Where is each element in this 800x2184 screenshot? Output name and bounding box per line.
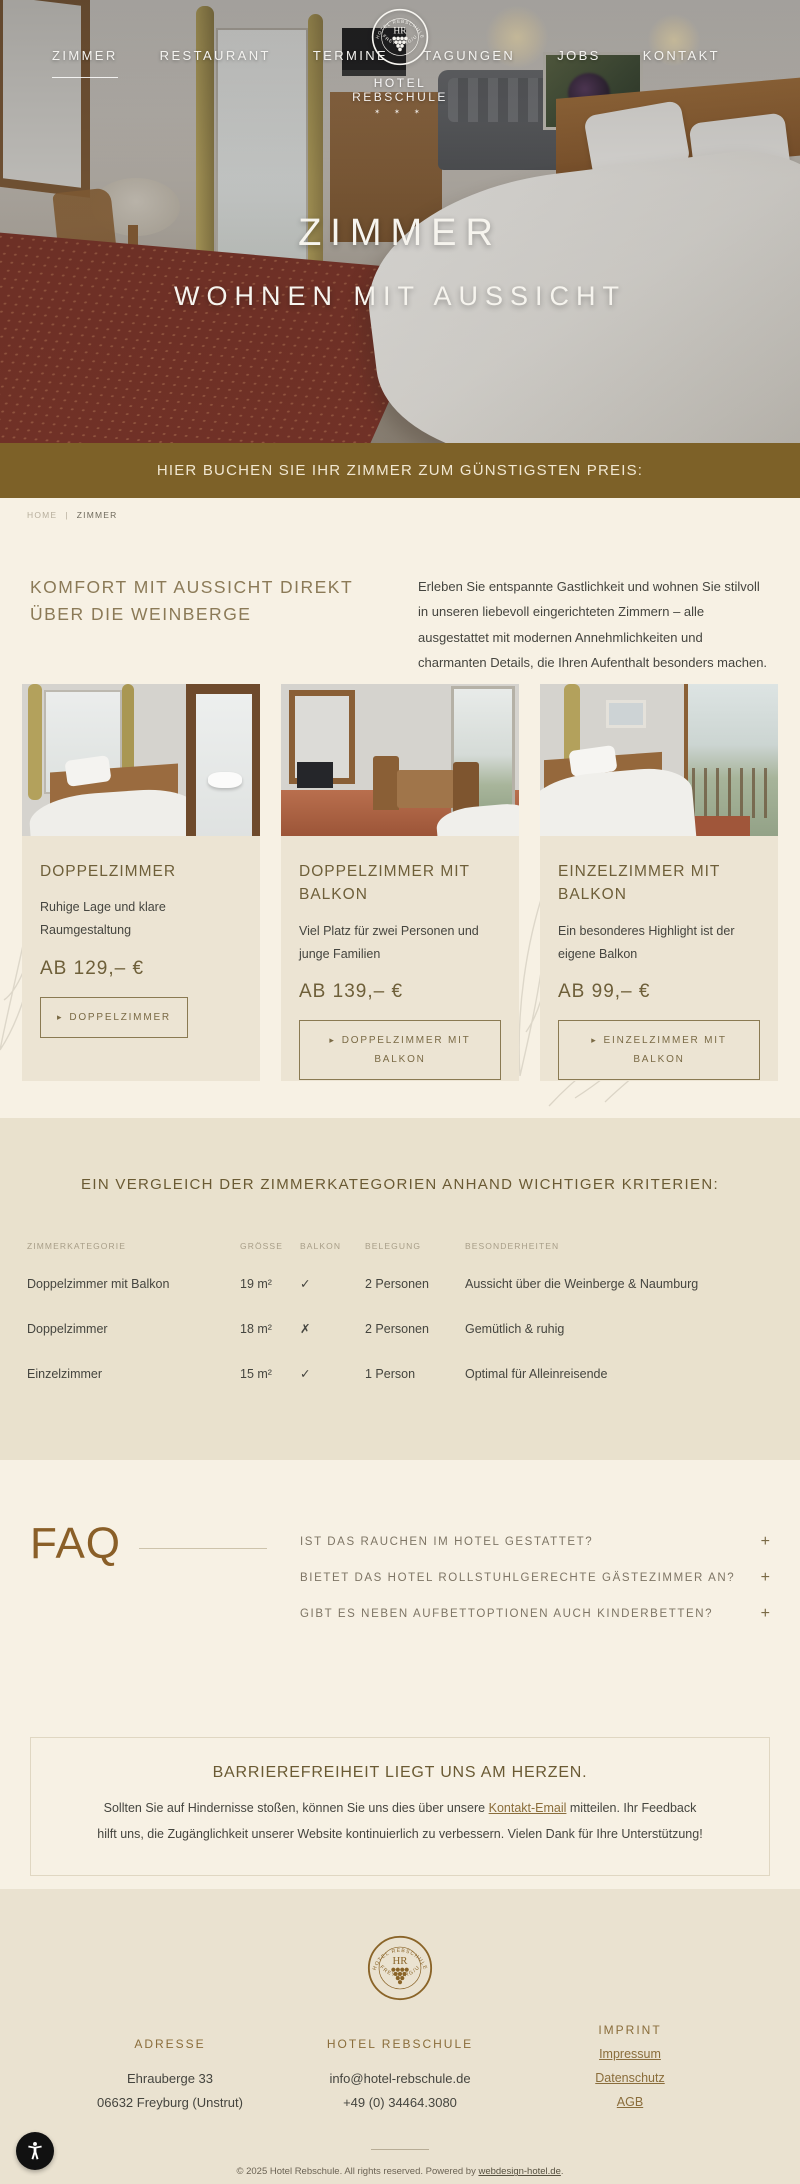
faq-divider-line xyxy=(139,1548,267,1549)
hotel-badge-icon xyxy=(371,8,429,66)
footer-address-heading: ADRESSE xyxy=(55,2037,285,2051)
room-card-doppelzimmer-balkon: DOPPELZIMMER MIT BALKON Viel Platz für z… xyxy=(281,684,519,1081)
accessibility-note: BARRIEREFREIHEIT LIEGT UNS AM HERZEN. So… xyxy=(30,1737,770,1876)
footer-address-column: ADRESSE Ehrauberge 33 06632 Freyburg (Un… xyxy=(55,2037,285,2115)
page-subtitle: WOHNEN MIT AUSSICHT xyxy=(0,281,800,312)
column-header: GRÖSSE xyxy=(240,1241,300,1261)
intro-heading: KOMFORT MIT AUSSICHT DIREKT ÜBER DIE WEI… xyxy=(30,574,370,678)
room-title: DOPPELZIMMER xyxy=(40,860,242,883)
card-art xyxy=(28,684,42,800)
room-description: Ein besonderes Highlight ist der eigene … xyxy=(558,920,760,966)
footer-phone[interactable]: +49 (0) 34464.3080 xyxy=(285,2091,515,2115)
accessibility-note-text: Sollten Sie auf Hindernisse stoßen, könn… xyxy=(97,1796,703,1847)
footer-hotel-badge-icon xyxy=(367,1935,433,2001)
cell-besonderheiten: Optimal für Alleinreisende xyxy=(465,1367,773,1381)
breadcrumb-separator: | xyxy=(65,510,68,520)
room-button-doppelzimmer[interactable]: ▸DOPPELZIMMER xyxy=(40,997,188,1038)
booking-banner-text: HIER BUCHEN SIE IHR ZIMMER ZUM GÜNSTIGST… xyxy=(157,462,643,479)
footer-address-line1: Ehrauberge 33 xyxy=(55,2067,285,2091)
room-cards: DOPPELZIMMER Ruhige Lage und klare Raumg… xyxy=(22,684,778,1081)
datenschutz-link[interactable]: Datenschutz xyxy=(515,2067,745,2091)
cell-groesse: 19 m² xyxy=(240,1277,300,1291)
cell-belegung: 2 Personen xyxy=(365,1322,465,1336)
plus-icon[interactable]: + xyxy=(761,1533,770,1551)
page-title: ZIMMER xyxy=(0,212,800,255)
copyright-text: © 2025 Hotel Rebschule. All rights reser… xyxy=(236,2166,478,2177)
copyright-text-after: . xyxy=(561,2166,564,2177)
column-header: ZIMMERKATEGORIE xyxy=(27,1241,240,1261)
room-button-einzelzimmer-balkon[interactable]: ▸EINZELZIMMER MIT BALKON xyxy=(558,1020,760,1080)
hero-titles: ZIMMER WOHNEN MIT AUSSICHT xyxy=(0,212,800,312)
plus-icon[interactable]: + xyxy=(761,1569,770,1587)
room-price: AB 99,– € xyxy=(558,981,760,1003)
arrow-icon: ▸ xyxy=(57,1012,63,1022)
table-row: Doppelzimmer mit Balkon 19 m² ✓ 2 Person… xyxy=(27,1261,773,1306)
faq-item-kinderbetten[interactable]: GIBT ES NEBEN AUFBETTOPTIONEN AUCH KINDE… xyxy=(300,1596,770,1632)
breadcrumb-current: ZIMMER xyxy=(77,510,118,520)
room-price: AB 129,– € xyxy=(40,958,242,980)
room-button-label: DOPPELZIMMER MIT BALKON xyxy=(342,1035,471,1065)
room-button-label: DOPPELZIMMER xyxy=(69,1012,171,1023)
agb-link[interactable]: AGB xyxy=(515,2091,745,2115)
footer-email[interactable]: info@hotel-rebschule.de xyxy=(285,2067,515,2091)
card-art xyxy=(397,770,455,808)
table-row: Einzelzimmer 15 m² ✓ 1 Person Optimal fü… xyxy=(27,1351,773,1396)
impressum-link[interactable]: Impressum xyxy=(515,2043,745,2067)
faq-item-rauchen[interactable]: IST DAS RAUCHEN IM HOTEL GESTATTET? + xyxy=(300,1524,770,1560)
cell-groesse: 18 m² xyxy=(240,1322,300,1336)
faq-list: IST DAS RAUCHEN IM HOTEL GESTATTET? + BI… xyxy=(300,1522,770,1737)
card-art xyxy=(208,772,242,788)
footer-imprint-heading: IMPRINT xyxy=(515,2023,745,2037)
faq-section: FAQ IST DAS RAUCHEN IM HOTEL GESTATTET? … xyxy=(0,1460,800,1737)
note-text-before: Sollten Sie auf Hindernisse stoßen, könn… xyxy=(104,1801,489,1815)
logo-stars-icon: ✶ ✶ ✶ xyxy=(325,108,475,116)
check-icon: ✓ xyxy=(300,1366,365,1381)
room-title: DOPPELZIMMER MIT BALKON xyxy=(299,860,501,907)
intro-section: KOMFORT MIT AUSSICHT DIREKT ÜBER DIE WEI… xyxy=(0,532,800,678)
room-photo-einzelzimmer-balkon[interactable] xyxy=(540,684,778,836)
comparison-table-header: ZIMMERKATEGORIE GRÖSSE BALKON BELEGUNG B… xyxy=(27,1241,773,1261)
room-card-body: EINZELZIMMER MIT BALKON Ein besonderes H… xyxy=(540,836,778,1081)
card-art xyxy=(297,762,333,788)
faq-item-rollstuhl[interactable]: BIETET DAS HOTEL ROLLSTUHLGERECHTE GÄSTE… xyxy=(300,1560,770,1596)
room-title: EINZELZIMMER MIT BALKON xyxy=(558,860,760,907)
comparison-heading: EIN VERGLEICH DER ZIMMERKATEGORIEN ANHAN… xyxy=(27,1176,773,1193)
column-header: BESONDERHEITEN xyxy=(465,1241,773,1261)
nav-item-jobs[interactable]: JOBS xyxy=(557,48,601,63)
column-header: BELEGUNG xyxy=(365,1241,465,1261)
breadcrumb-home-link[interactable]: HOME xyxy=(27,510,57,520)
room-card-body: DOPPELZIMMER Ruhige Lage und klare Raumg… xyxy=(22,836,260,1081)
room-card-doppelzimmer: DOPPELZIMMER Ruhige Lage und klare Raumg… xyxy=(22,684,260,1081)
breadcrumb: HOME | ZIMMER xyxy=(0,498,800,532)
comparison-section: EIN VERGLEICH DER ZIMMERKATEGORIEN ANHAN… xyxy=(0,1118,800,1460)
kontakt-email-link[interactable]: Kontakt-Email xyxy=(489,1801,567,1815)
room-button-doppelzimmer-balkon[interactable]: ▸DOPPELZIMMER MIT BALKON xyxy=(299,1020,501,1080)
arrow-icon: ▸ xyxy=(329,1035,335,1045)
accessibility-note-heading: BARRIEREFREIHEIT LIEGT UNS AM HERZEN. xyxy=(97,1764,703,1782)
footer-imprint-column: IMPRINT Impressum Datenschutz AGB xyxy=(515,2037,745,2115)
column-header: BALKON xyxy=(300,1241,365,1261)
room-price: AB 139,– € xyxy=(299,981,501,1003)
card-art xyxy=(692,768,772,818)
nav-item-zimmer[interactable]: ZIMMER xyxy=(52,48,118,63)
copyright: © 2025 Hotel Rebschule. All rights reser… xyxy=(0,2166,800,2177)
plus-icon[interactable]: + xyxy=(761,1605,770,1623)
hotel-rebschule-zimmer-page: ZIMMER RESTAURANT TERMINE TAGUNGEN JOBS … xyxy=(0,0,800,2184)
room-card-einzelzimmer-balkon: EINZELZIMMER MIT BALKON Ein besonderes H… xyxy=(540,684,778,1081)
faq-question: IST DAS RAUCHEN IM HOTEL GESTATTET? xyxy=(300,1536,593,1548)
footer: ADRESSE Ehrauberge 33 06632 Freyburg (Un… xyxy=(0,1889,800,2184)
nav-item-kontakt[interactable]: KONTAKT xyxy=(643,48,720,63)
faq-question: GIBT ES NEBEN AUFBETTOPTIONEN AUCH KINDE… xyxy=(300,1608,713,1620)
room-photo-doppelzimmer-balkon[interactable] xyxy=(281,684,519,836)
table-row: Doppelzimmer 18 m² ✗ 2 Personen Gemütlic… xyxy=(27,1306,773,1351)
room-photo-doppelzimmer[interactable] xyxy=(22,684,260,836)
arrow-icon: ▸ xyxy=(591,1035,597,1045)
cell-belegung: 1 Person xyxy=(365,1367,465,1381)
accessibility-widget-button[interactable] xyxy=(16,2132,54,2170)
nav-item-restaurant[interactable]: RESTAURANT xyxy=(160,48,271,63)
card-art xyxy=(196,694,252,836)
card-art xyxy=(453,762,479,812)
hero-section: ZIMMER RESTAURANT TERMINE TAGUNGEN JOBS … xyxy=(0,0,800,443)
footer-contact-heading: HOTEL REBSCHULE xyxy=(285,2037,515,2051)
faq-question: BIETET DAS HOTEL ROLLSTUHLGERECHTE GÄSTE… xyxy=(300,1572,735,1584)
room-button-label: EINZELZIMMER MIT BALKON xyxy=(604,1035,727,1065)
booking-banner[interactable]: HIER BUCHEN SIE IHR ZIMMER ZUM GÜNSTIGST… xyxy=(0,443,800,498)
cell-kategorie: Einzelzimmer xyxy=(27,1367,240,1381)
faq-heading: FAQ xyxy=(30,1522,121,1737)
footer-divider xyxy=(371,2149,429,2150)
room-card-body: DOPPELZIMMER MIT BALKON Viel Platz für z… xyxy=(281,836,519,1081)
accessibility-person-icon xyxy=(24,2140,46,2162)
footer-contact-column: HOTEL REBSCHULE info@hotel-rebschule.de … xyxy=(285,2037,515,2115)
logo-name: HOTEL REBSCHULE xyxy=(325,76,475,104)
card-art xyxy=(373,756,399,810)
webdesign-hotel-link[interactable]: webdesign-hotel.de xyxy=(478,2166,560,2177)
header-logo[interactable]: HOTEL REBSCHULE ✶ ✶ ✶ xyxy=(325,8,475,116)
footer-columns: ADRESSE Ehrauberge 33 06632 Freyburg (Un… xyxy=(55,2037,745,2115)
cell-besonderheiten: Gemütlich & ruhig xyxy=(465,1322,773,1336)
card-art xyxy=(606,700,646,728)
check-icon: ✓ xyxy=(300,1276,365,1291)
comparison-table-body: Doppelzimmer mit Balkon 19 m² ✓ 2 Person… xyxy=(27,1261,773,1396)
cell-kategorie: Doppelzimmer xyxy=(27,1322,240,1336)
room-description: Ruhige Lage und klare Raumgestaltung xyxy=(40,896,242,942)
cell-belegung: 2 Personen xyxy=(365,1277,465,1291)
cell-besonderheiten: Aussicht über die Weinberge & Naumburg xyxy=(465,1277,773,1291)
intro-text: Erleben Sie entspannte Gastlichkeit und … xyxy=(418,574,770,678)
room-description: Viel Platz für zwei Personen und junge F… xyxy=(299,920,501,966)
cell-kategorie: Doppelzimmer mit Balkon xyxy=(27,1277,240,1291)
cell-groesse: 15 m² xyxy=(240,1367,300,1381)
footer-address-line2: 06632 Freyburg (Unstrut) xyxy=(55,2091,285,2115)
cross-icon: ✗ xyxy=(300,1321,365,1336)
